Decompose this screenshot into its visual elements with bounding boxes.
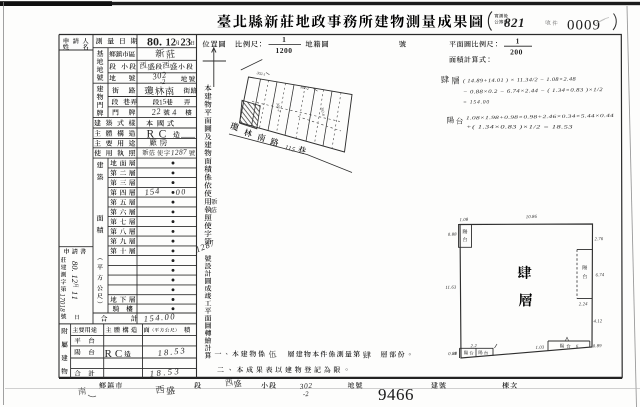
svg-text:1200: 1200 <box>276 46 293 55</box>
svg-text:RC: RC <box>147 128 171 140</box>
svg-text:0009: 0009 <box>567 18 601 34</box>
svg-text:9466: 9466 <box>378 385 414 404</box>
svg-text:11.63: 11.63 <box>445 284 457 289</box>
svg-text:200: 200 <box>510 48 523 57</box>
svg-text:= 154.00: = 154.00 <box>463 100 490 106</box>
svg-text:RC: RC <box>105 348 126 360</box>
svg-text:22: 22 <box>151 106 162 117</box>
svg-text:80.: 80. <box>147 34 162 48</box>
svg-text:00: 00 <box>175 187 187 197</box>
svg-text:0.88: 0.88 <box>448 232 458 237</box>
svg-text:.11: .11 <box>452 351 457 356</box>
svg-text:4.12: 4.12 <box>593 318 603 323</box>
svg-text:80.: 80. <box>70 261 80 272</box>
svg-text:1: 1 <box>282 35 286 44</box>
svg-text:2.24: 2.24 <box>579 301 589 306</box>
svg-text:10.86: 10.86 <box>526 214 538 219</box>
svg-text:154: 154 <box>144 185 161 197</box>
svg-text:6.74: 6.74 <box>595 272 605 277</box>
svg-text:1: 1 <box>516 37 520 46</box>
svg-text:821: 821 <box>504 15 525 30</box>
svg-text:1287: 1287 <box>171 147 188 157</box>
svg-text:0.89: 0.89 <box>593 343 603 348</box>
svg-text:23: 23 <box>181 37 192 48</box>
svg-text:12: 12 <box>70 275 80 284</box>
svg-text:12: 12 <box>166 37 177 48</box>
svg-text:2.2: 2.2 <box>470 343 477 348</box>
svg-text:2.76: 2.76 <box>594 236 604 241</box>
svg-text:17018: 17018 <box>58 294 65 313</box>
svg-text:1.08: 1.08 <box>459 217 469 222</box>
svg-text:+( 1.34×0.83 )×1/2 = 18.53: +( 1.34×0.83 )×1/2 = 18.53 <box>466 124 573 131</box>
svg-text:11: 11 <box>70 291 80 301</box>
svg-text:1.03: 1.03 <box>535 345 545 350</box>
